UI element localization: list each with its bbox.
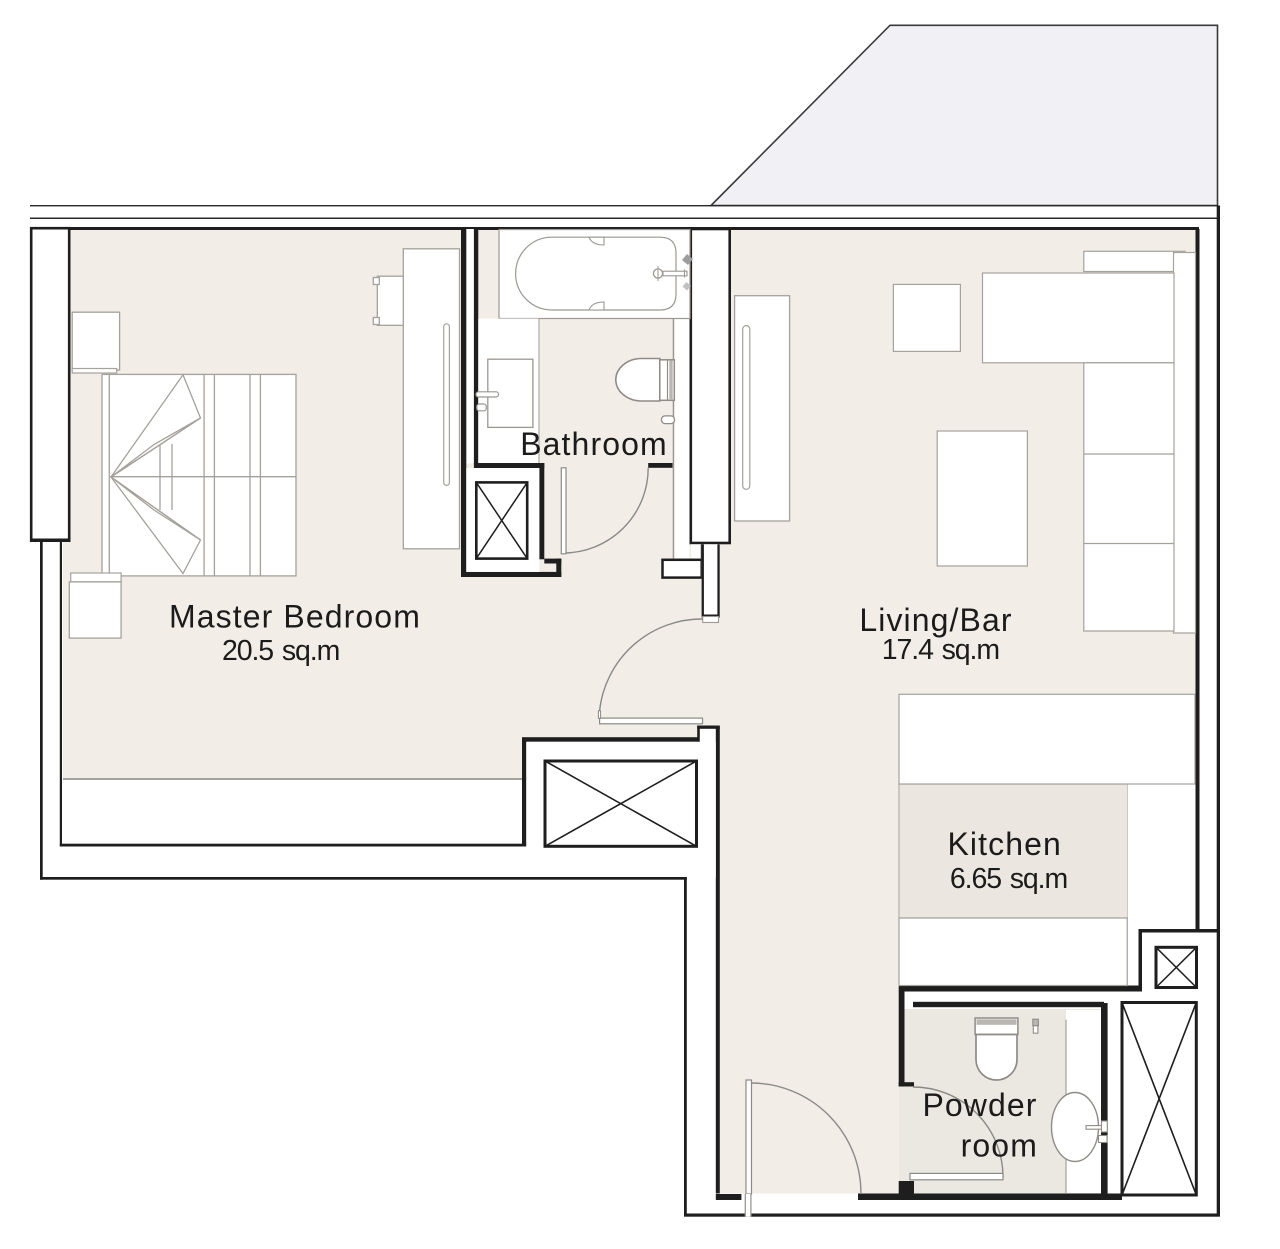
svg-text:Living/Bar: Living/Bar: [859, 602, 1012, 638]
svg-text:Master Bedroom: Master Bedroom: [169, 599, 421, 635]
svg-text:20.5 sq.m: 20.5 sq.m: [222, 635, 339, 667]
svg-text:6.65 sq.m: 6.65 sq.m: [950, 863, 1067, 895]
svg-text:Powder: Powder: [922, 1087, 1037, 1123]
svg-text:Bathroom: Bathroom: [520, 426, 668, 462]
svg-text:Kitchen: Kitchen: [947, 826, 1061, 862]
svg-text:17.4 sq.m: 17.4 sq.m: [882, 634, 999, 666]
svg-text:room: room: [961, 1127, 1038, 1163]
